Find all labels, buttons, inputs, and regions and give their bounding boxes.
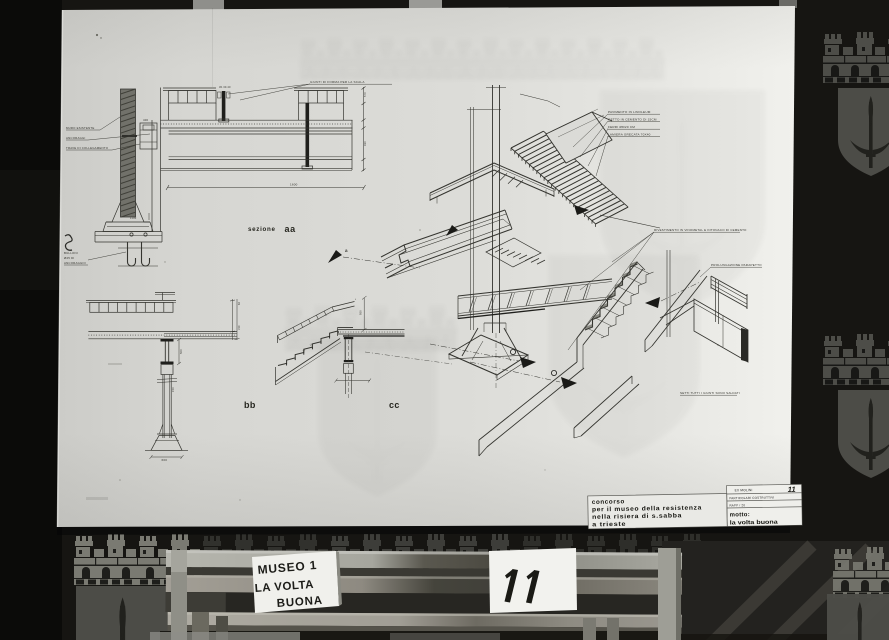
svg-text:150: 150 [171,387,175,392]
svg-text:PAVIMENTO IN LINOLEUM: PAVIMENTO IN LINOLEUM [608,110,651,114]
svg-text:MURO ESISTENTE: MURO ESISTENTE [66,126,95,130]
svg-text:PROLUNGAZIONE PARAPETTO: PROLUNGAZIONE PARAPETTO [711,263,762,267]
svg-text:sezione: sezione [248,226,276,233]
svg-text:ANCORAGGIO: ANCORAGGIO [64,261,86,265]
svg-text:la volta buona: la volta buona [730,520,779,527]
svg-text:•: • [355,297,356,301]
svg-text:30.30.40: 30.30.40 [219,85,231,89]
svg-text:LAMIERA GRECATA 70X40: LAMIERA GRECATA 70X40 [608,133,651,137]
svg-text:150: 150 [238,325,241,330]
svg-text:600: 600 [162,458,168,462]
svg-text:GETTO IN CEMENTO DI 15CM: GETTO IN CEMENTO DI 15CM [608,118,657,122]
svg-text:a: a [345,248,348,253]
svg-text:ANCORAGGI: ANCORAGGI [66,136,85,140]
svg-text:bb: bb [244,400,256,410]
svg-text:500: 500 [179,349,183,354]
svg-text:1100: 1100 [130,216,137,220]
svg-text:430: 430 [363,141,367,146]
svg-text:a trieste: a trieste [592,521,626,529]
svg-text:400: 400 [143,118,149,122]
svg-text:1600: 1600 [290,183,298,187]
svg-text:motto:: motto: [730,512,751,518]
svg-text:BULLONI: BULLONI [64,251,78,255]
svg-text:aa: aa [285,224,297,234]
svg-text:FERRI Ø8/20 CM: FERRI Ø8/20 CM [608,125,635,129]
svg-text:GIUNTI DI FORMA PER LA SCALA: GIUNTI DI FORMA PER LA SCALA [310,80,365,84]
svg-text:cc: cc [389,400,400,410]
svg-text:concorso: concorso [592,498,625,506]
svg-text:950: 950 [359,310,363,315]
svg-text:PARTICOLARI COSTRUTTIVI: PARTICOLARI COSTRUTTIVI [729,495,774,500]
svg-text:570: 570 [363,92,367,97]
svg-text:SETTI TUTTI I GIUNTI SONO SALD: SETTI TUTTI I GIUNTI SONO SALDATI [680,391,740,395]
svg-text:TRAVE DI COLLEGAMENTO: TRAVE DI COLLEGAMENTO [66,146,109,150]
svg-text:80: 80 [238,301,241,305]
svg-text:EX MOLINI: EX MOLINI [735,488,753,492]
svg-text:RAPP / 20: RAPP / 20 [729,503,745,507]
svg-text:11: 11 [788,485,796,494]
svg-text:RIVESTIMENTO IN VINOMETAL E IN: RIVESTIMENTO IN VINOMETAL E INTONACO DI … [654,228,747,232]
svg-text:Ø25 DI: Ø25 DI [64,256,74,260]
